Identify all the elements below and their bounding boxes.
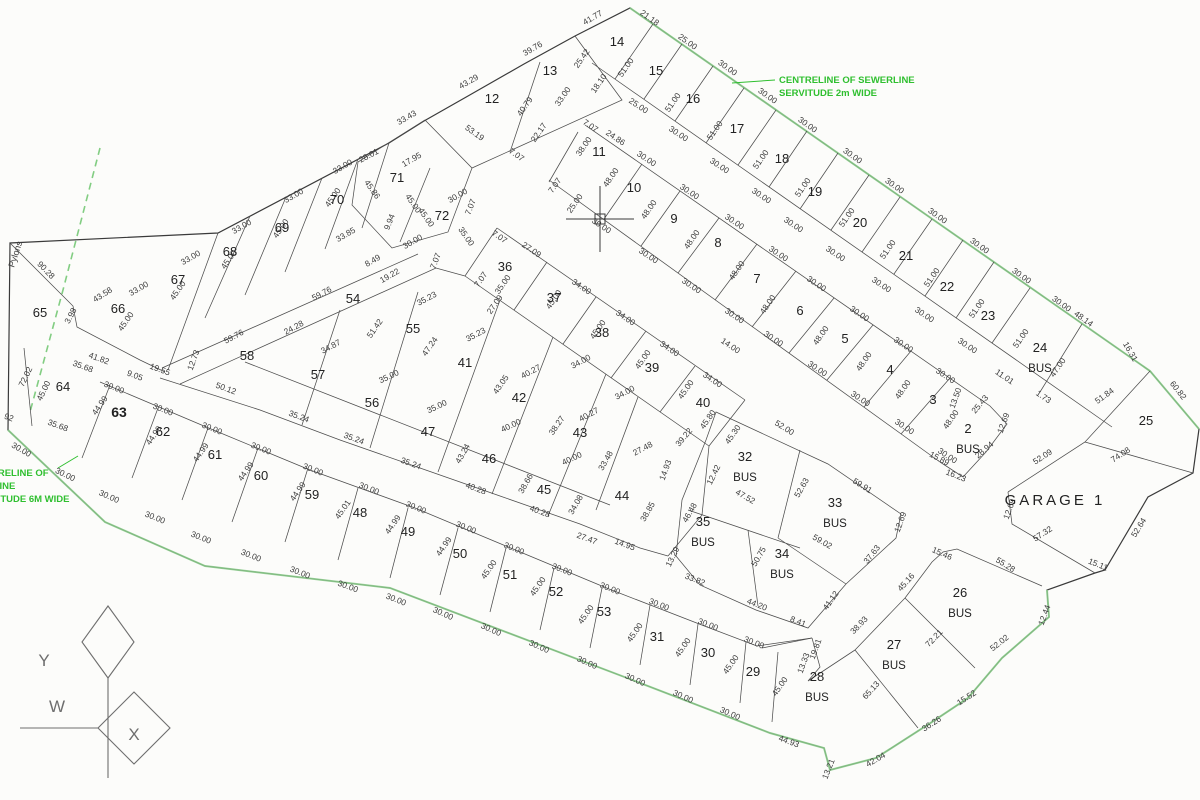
plot-number: 72 [435, 208, 449, 223]
dim-label: 25.00 [627, 96, 650, 116]
dim-label: 12.69 [995, 411, 1012, 434]
plot-number: 14 [610, 34, 624, 49]
dim-label: 40.79 [514, 95, 534, 118]
dim-label: 38.85 [638, 500, 657, 523]
dim-label: 35.23 [415, 289, 439, 308]
dim-label: 30.00 [98, 487, 122, 505]
dim-label: 40.28 [464, 480, 487, 497]
dim-label: 51.00 [877, 238, 897, 261]
plot-number: 2 [964, 421, 971, 436]
dim-label: 51.00 [750, 148, 770, 171]
plot-bus-label: BUS [948, 608, 972, 620]
sewerline-leader [732, 80, 775, 83]
dim-label: 35.00 [492, 273, 512, 296]
plot-number: 43 [573, 425, 587, 440]
dim-label: 39.22 [673, 426, 694, 449]
dim-label: 45.80 [697, 408, 717, 431]
dim-label: 59.76 [310, 284, 334, 303]
plot-number: 19 [808, 184, 822, 199]
plot-number: 4 [886, 362, 893, 377]
dim-label: 48.00 [810, 324, 830, 347]
dim-label: 21.18 [638, 7, 661, 28]
plot-number: 22 [940, 279, 954, 294]
coordinate-axes-symbol: Y W X [20, 606, 170, 778]
pylons-label: Pylons [6, 239, 24, 268]
dim-label: 30.00 [401, 232, 424, 251]
plot-number: 60 [254, 468, 268, 483]
dim-label: 47.24 [419, 335, 439, 358]
plot-bus-label: BUS [882, 660, 906, 672]
plot-number: 47 [421, 424, 435, 439]
dim-label: 44.99 [382, 513, 402, 536]
green-servitude-lines [8, 8, 1199, 770]
dim-label: 16.23 [945, 467, 968, 484]
plot-number: 61 [208, 447, 222, 462]
dim-label: 51.42 [364, 317, 384, 340]
plot-number: 11 [592, 144, 606, 159]
dim-label: 30.00 [480, 620, 504, 638]
dim-label: 30.00 [144, 509, 167, 526]
dim-label: 13.29 [663, 545, 681, 569]
dim-label: 34.00 [658, 339, 681, 359]
dim-label: 30.00 [302, 461, 325, 478]
dim-label: 35.23 [464, 325, 488, 344]
dim-label: 48.00 [681, 228, 701, 251]
plot-number: 57 [311, 367, 325, 382]
plot-number: 50 [453, 546, 467, 561]
plot-number: 51 [503, 567, 517, 582]
dim-label: 38.27 [546, 414, 566, 437]
sewerline-servitude-line [630, 8, 1199, 429]
survey-plan-canvas: Y W X CENTRELINE OF SEWERLINE SERVITUDE … [0, 0, 1200, 800]
plot-boundaries [10, 24, 1193, 728]
dim-label: 30.00 [893, 417, 916, 437]
dim-label: 30.00 [782, 215, 805, 235]
dim-label: 45.00 [416, 206, 436, 229]
dim-label: 30.00 [635, 149, 658, 169]
dim-label: 60.82 [1168, 379, 1189, 402]
pipeline-note-line3: SERVITUDE 6M WIDE [0, 494, 69, 505]
dim-label: 1.73 [1034, 388, 1053, 406]
plot-bus-label: BUS [1028, 363, 1052, 375]
dim-label: 12.69 [892, 510, 909, 533]
plot-number: 41 [458, 355, 472, 370]
plot-number: 66 [111, 301, 125, 316]
dim-label: 52.00 [773, 418, 796, 438]
dim-label: 35.68 [46, 417, 69, 434]
dim-label: 59.76 [222, 327, 246, 346]
dim-label: 50.12 [214, 380, 237, 397]
dim-label: 44.93 [777, 733, 800, 750]
dim-label: 52.64 [1129, 516, 1149, 539]
dim-label: 41.77 [581, 8, 604, 27]
plot-number: 67 [171, 272, 185, 287]
dim-label: 52.02 [988, 632, 1011, 653]
dim-label: 92 [3, 411, 15, 424]
dim-label: 51.00 [1010, 327, 1030, 350]
plot-number: 29 [746, 664, 760, 679]
dim-label: 55.28 [994, 555, 1017, 575]
plot-number: 28 [810, 669, 824, 684]
dim-label: 7.07 [546, 175, 564, 194]
dim-label: 14.93 [657, 458, 674, 481]
plot-number: 12 [485, 91, 499, 106]
dim-label: 45.00 [675, 378, 695, 401]
dim-label: 12.44 [1036, 603, 1053, 626]
dim-label: 51.00 [704, 119, 724, 142]
dim-label: 30.00 [648, 596, 671, 613]
dim-label: 9.94 [382, 212, 398, 231]
dim-label: 30.00 [576, 653, 600, 671]
dim-label: 33.00 [127, 279, 150, 298]
dim-label: 45.00 [672, 636, 692, 659]
dim-label: 7.07 [472, 269, 490, 288]
dim-label: 30.00 [103, 379, 126, 396]
plot-number: 69 [275, 220, 289, 235]
dim-label: 30.00 [336, 578, 359, 595]
plot-number: 49 [401, 524, 415, 539]
plot-number: 62 [156, 424, 170, 439]
plot-number: 46 [482, 451, 496, 466]
dim-label: 51.84 [1093, 385, 1116, 406]
plot-number: 37 [547, 290, 561, 305]
dim-label: 33.00 [552, 85, 572, 108]
plot-number: 48 [353, 505, 367, 520]
dim-label: 30.00 [697, 616, 720, 633]
plot-number: 7 [753, 271, 760, 286]
plot-bus-label: BUS [823, 518, 847, 530]
plot-number-labels: 1415161718192021222324BUS25111098765432B… [33, 34, 1153, 704]
dim-label: 40.00 [560, 449, 584, 467]
dim-label: 30.00 [762, 329, 785, 349]
dim-label: 35.24 [399, 455, 422, 472]
plot-number: 54 [346, 291, 360, 306]
dim-label: 51.00 [615, 56, 635, 79]
dim-label: 27.09 [484, 293, 504, 316]
dim-label: 45.00 [769, 675, 789, 698]
dim-label: 33.85 [334, 225, 357, 244]
plot-number: 56 [365, 395, 379, 410]
dim-label: 30.00 [716, 57, 739, 78]
dim-label: 48.00 [940, 408, 960, 431]
plot-number: 36 [498, 259, 512, 274]
dim-label: 35.24 [342, 430, 365, 447]
plot-number: 68 [223, 244, 237, 259]
dim-label: 35.00 [425, 397, 449, 415]
dim-label: 45.00 [720, 653, 740, 676]
dim-label: 30.00 [455, 519, 478, 536]
plot-number: 27 [887, 637, 901, 652]
plot-number: 9 [670, 211, 677, 226]
pipeline-note-line1: CENTRELINE OF [0, 468, 49, 479]
dim-label: 14.00 [719, 336, 742, 356]
dim-label: 45.30 [722, 423, 742, 446]
plot-number: 16 [686, 91, 700, 106]
plot-number: 38 [595, 325, 609, 340]
dim-label: 30.00 [680, 276, 703, 296]
dim-label: 45.86 [362, 178, 382, 201]
dim-label: 30.00 [10, 440, 33, 459]
dim-label: 52.63 [792, 476, 811, 499]
dim-label: 7.07 [507, 146, 526, 164]
dim-label: 33.00 [179, 248, 202, 267]
dim-label: 34.00 [570, 277, 593, 297]
plot-number: 21 [899, 248, 913, 263]
dim-label: 30.00 [190, 529, 213, 546]
plot-number: 55 [406, 321, 420, 336]
dim-label: 13.50 [947, 386, 964, 409]
dim-label: 48.00 [892, 378, 912, 401]
dim-label: 65.13 [860, 679, 882, 702]
outer-boundary [8, 8, 1199, 770]
dim-label: 19.22 [378, 266, 401, 285]
dim-label: 33.48 [596, 449, 615, 472]
plot-number: 24 [1033, 340, 1047, 355]
dim-label: 72.02 [16, 365, 34, 389]
plot-number: 58 [240, 348, 254, 363]
cadastral-plan-drawing: Y W X CENTRELINE OF SEWERLINE SERVITUDE … [0, 0, 1200, 800]
dim-label: 34.00 [613, 383, 637, 402]
dim-label: 19.55 [148, 361, 171, 378]
dim-label: 30.00 [667, 124, 690, 144]
y-axis-arrowhead [82, 606, 134, 678]
dim-label: 30.00 [672, 687, 696, 705]
plot-number: 63 [111, 404, 127, 420]
dim-label: 43.29 [457, 72, 480, 91]
dim-label: 34.00 [701, 370, 724, 390]
dim-label: 27.09 [520, 240, 543, 260]
dim-label: 53.19 [463, 122, 486, 143]
dim-label: 30.00 [723, 306, 746, 326]
plot-number: 44 [615, 488, 629, 503]
dim-label: 72.21 [923, 627, 945, 649]
plot-number: 42 [512, 390, 526, 405]
dim-label: 35.24 [287, 408, 310, 425]
dim-label: 48.00 [757, 293, 777, 316]
dim-label: 14.95 [613, 536, 636, 553]
dim-label: 30.00 [805, 274, 828, 294]
dim-label: 30.00 [913, 305, 936, 325]
dim-label: 43.05 [490, 373, 510, 396]
dim-label: 30.00 [848, 304, 871, 324]
plot-number: 35 [696, 514, 710, 529]
plot-bus-label: BUS [691, 537, 715, 549]
dim-label: 30.00 [678, 182, 701, 202]
dim-label: 30.00 [824, 244, 847, 264]
plot-number: 25 [1139, 413, 1153, 428]
dim-label: 7.07 [463, 197, 479, 216]
dim-label: 34.00 [614, 308, 637, 328]
dim-label: 45.00 [575, 603, 595, 626]
dim-label: 30.00 [637, 246, 660, 266]
plot-number: 53 [597, 604, 611, 619]
dim-label: 30.00 [956, 336, 979, 356]
plot-number: 30 [701, 645, 715, 660]
dim-label: 18.10 [588, 72, 608, 95]
garage-label: GARAGE 1 [1005, 492, 1106, 509]
dim-label: 34.08 [566, 493, 585, 516]
dim-label: 24.28 [282, 318, 306, 337]
dim-label: 22.17 [528, 121, 548, 144]
plot-bus-label: BUS [956, 444, 980, 456]
dim-label: 30.00 [240, 547, 263, 564]
plot-number: 3 [929, 392, 936, 407]
plot-number: 39 [645, 360, 659, 375]
dim-label: 30.00 [250, 440, 273, 457]
dim-label: 59.91 [851, 476, 874, 496]
dim-label: 30.00 [849, 389, 872, 409]
plot-number: 64 [56, 379, 70, 394]
dim-label: 30.00 [551, 561, 574, 578]
plot-number: 20 [853, 215, 867, 230]
dim-label: 41.12 [820, 589, 840, 612]
dim-label: 33.43 [395, 108, 418, 127]
dim-label: 50.75 [749, 545, 768, 568]
dim-label: 43.24 [453, 442, 472, 465]
dim-label: 34.87 [319, 337, 343, 356]
x-axis-label: X [128, 725, 139, 744]
dim-label: 30.00 [599, 580, 622, 597]
dim-label: 30.00 [870, 275, 893, 295]
plot-number: 33 [828, 495, 842, 510]
dim-label: 30.00 [358, 480, 381, 497]
dim-label: 30.00 [756, 85, 779, 106]
plot-number: 70 [330, 192, 344, 207]
dimension-labels: 21.1825.0030.0030.0030.0030.0030.0030.00… [3, 7, 1189, 780]
plot-number: 52 [549, 584, 563, 599]
plot-number: 31 [650, 629, 664, 644]
plot-number: 10 [627, 180, 641, 195]
dim-label: 27.48 [631, 439, 655, 458]
dim-label: 48.00 [600, 166, 620, 189]
dim-label: 38.00 [573, 135, 593, 158]
dim-label: 38.66 [516, 472, 535, 495]
dim-label: 30.00 [719, 704, 743, 722]
plot-number: 15 [649, 63, 663, 78]
dim-label: 27.47 [575, 530, 598, 547]
plot-number: 23 [981, 308, 995, 323]
dim-label: 40.28 [528, 503, 551, 520]
dim-label: 40.00 [499, 416, 523, 434]
dim-label: 7.07 [581, 117, 600, 135]
dim-label: 45.00 [478, 558, 498, 581]
dim-label: 45.00 [624, 621, 644, 644]
dim-label: 48.00 [638, 198, 658, 221]
dim-label: 9.05 [126, 368, 145, 383]
dim-label: 30.00 [201, 420, 224, 437]
plot-number: 18 [775, 151, 789, 166]
dim-label: 38.93 [848, 614, 870, 636]
dim-label: 59.02 [811, 532, 834, 551]
dim-label: 33.00 [331, 157, 354, 176]
dim-label: 33.82 [684, 571, 707, 588]
plot-number: 8 [714, 235, 721, 250]
sewerline-note-line1: CENTRELINE OF SEWERLINE [779, 75, 915, 86]
dim-label: 30.00 [624, 670, 648, 688]
dim-label: 30.00 [743, 634, 766, 651]
plot-bus-label: BUS [770, 569, 794, 581]
pipeline-note-line2: PIPELINE [0, 481, 15, 492]
dim-label: 51.00 [662, 91, 682, 114]
plot-number: 17 [730, 121, 744, 136]
dim-label: 30.00 [750, 186, 773, 206]
w-label: W [49, 697, 65, 716]
dim-label: 47.52 [734, 487, 757, 506]
dim-label: 30.00 [528, 637, 552, 655]
plot-number: 34 [775, 546, 789, 561]
plot-number: 71 [390, 170, 404, 185]
dim-label: 45.00 [527, 575, 547, 598]
plot-number: 6 [796, 303, 803, 318]
dim-label: 25.42 [571, 47, 591, 70]
dim-label: 48.00 [853, 350, 873, 373]
dim-label: 45.00 [34, 379, 52, 403]
plot-bus-label: BUS [733, 472, 757, 484]
dim-label: 57.32 [1031, 523, 1054, 543]
y-axis-label: Y [38, 651, 49, 670]
dim-label: 30.00 [767, 244, 790, 264]
dim-label: 30.00 [806, 359, 829, 379]
dim-label: 30.00 [432, 604, 456, 622]
dim-label: 40.27 [519, 362, 543, 381]
dim-label: 74.08 [1109, 444, 1132, 464]
dim-label: 24.86 [604, 128, 627, 148]
plot-number: 59 [305, 487, 319, 502]
dim-label: 40.27 [577, 405, 601, 424]
dim-label: 7.07 [490, 228, 509, 246]
dim-label: 11.01 [993, 367, 1016, 387]
plot-number: 13 [543, 63, 557, 78]
dim-label: 35.00 [377, 367, 401, 385]
dim-label: 25.00 [564, 192, 584, 215]
dim-label: 51.00 [921, 266, 941, 289]
dim-label: 90.28 [35, 259, 57, 281]
dim-label: 8.49 [363, 252, 382, 269]
dim-label: 30.00 [54, 465, 78, 483]
plot-number: 26 [953, 585, 967, 600]
dim-label: 17.95 [400, 150, 423, 169]
plot-number: 40 [696, 395, 710, 410]
dim-label: 52.09 [1031, 446, 1054, 466]
plot-number: 45 [537, 482, 551, 497]
dim-label: 45.16 [895, 571, 917, 594]
dim-label: 30.00 [1010, 265, 1033, 286]
dim-label: 35.00 [456, 225, 476, 248]
plot-number: 5 [841, 331, 848, 346]
dim-label: 12.73 [185, 348, 202, 371]
dim-label: 44.99 [89, 394, 109, 417]
plot-number: 32 [738, 449, 752, 464]
dim-label: 30.00 [405, 499, 428, 516]
sewerline-note-line2: SERVITUDE 2m WIDE [779, 88, 877, 99]
plot-bus-label: BUS [805, 692, 829, 704]
dim-label: 30.00 [503, 540, 526, 557]
dim-label: 30.00 [1050, 293, 1073, 314]
plot-number: 65 [33, 305, 47, 320]
dim-label: 33.00 [230, 217, 253, 236]
dim-label: 7.07 [428, 251, 444, 270]
dim-label: 34.00 [569, 352, 593, 371]
